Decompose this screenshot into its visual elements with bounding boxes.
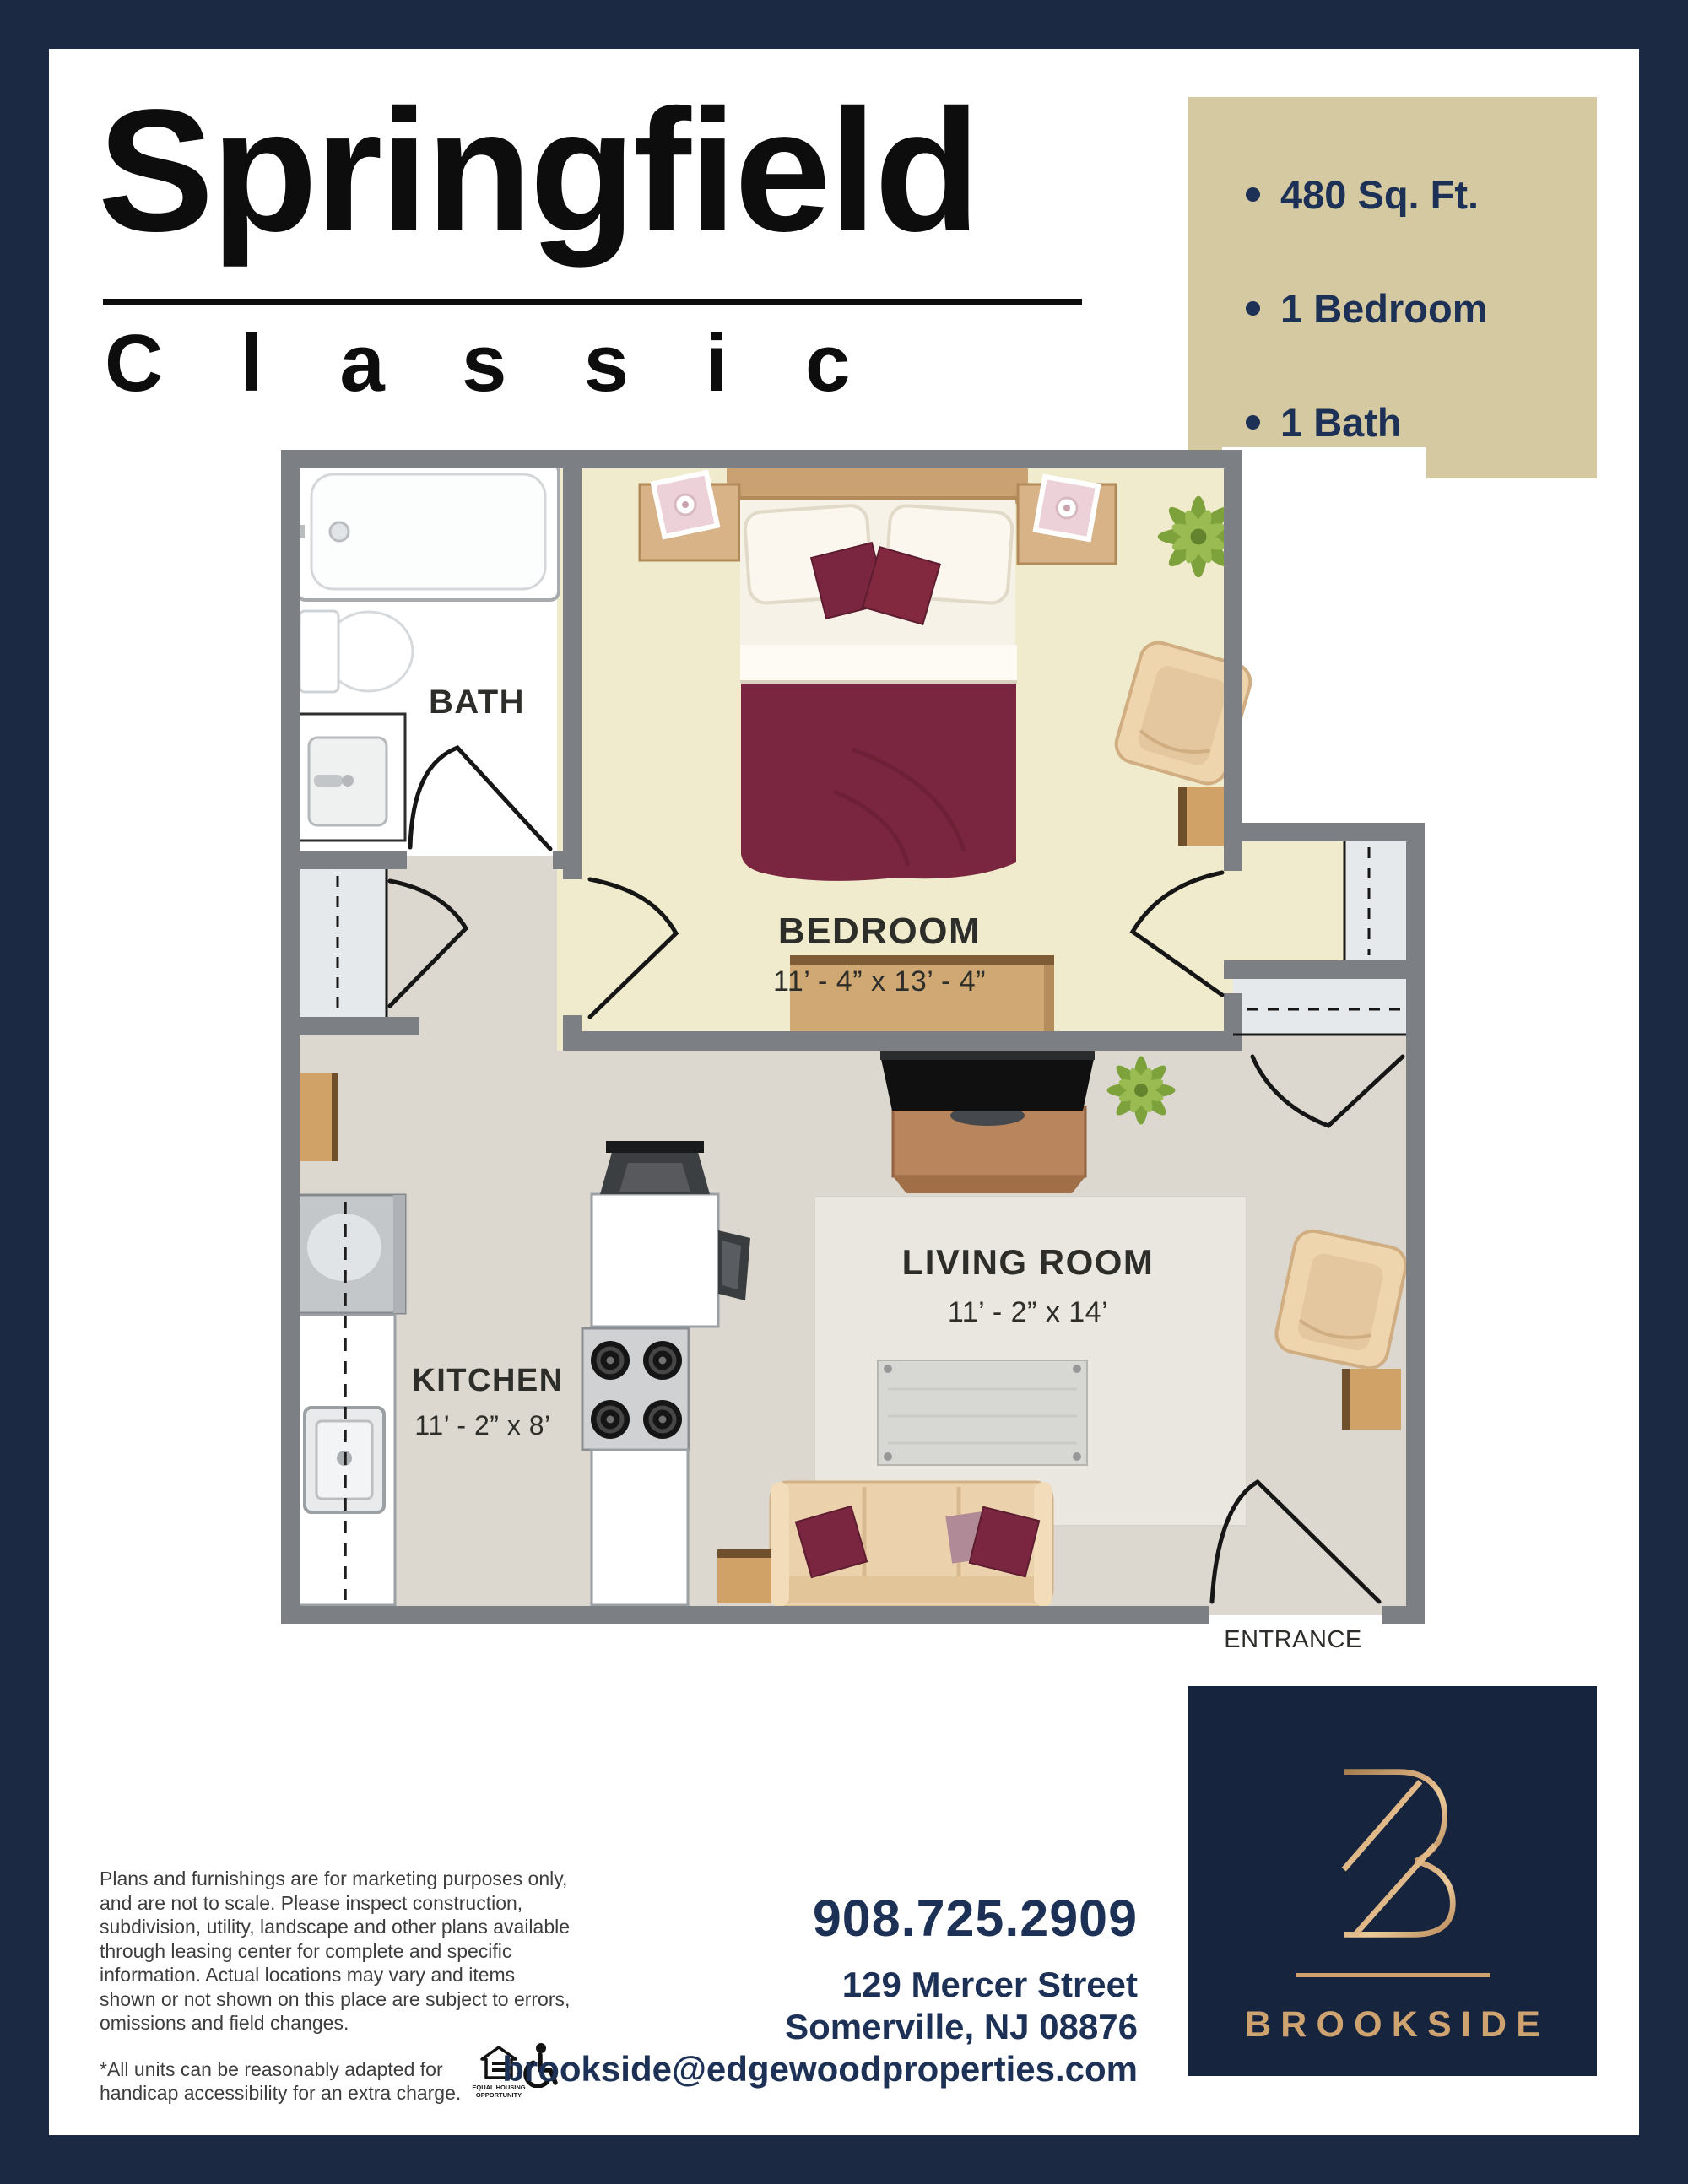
- plant-living: [1107, 1057, 1176, 1125]
- lamp-left: [653, 473, 717, 537]
- kitchen-cabinet: [299, 1073, 338, 1161]
- address-line2: Somerville, NJ 08876: [502, 2008, 1138, 2046]
- email-address: brookside@edgewoodproperties.com: [502, 2051, 1138, 2088]
- address-line1: 129 Mercer Street: [502, 1966, 1138, 2003]
- kitchen-dims: 11’ - 2” x 8’: [414, 1410, 550, 1441]
- bedroom-label: BEDROOM: [778, 911, 981, 952]
- feature-bedroom: 1 Bedroom: [1246, 285, 1597, 332]
- tv-console: [880, 1051, 1095, 1193]
- end-table: [717, 1549, 771, 1603]
- bullet-icon: [1246, 187, 1260, 202]
- lamp-right: [1036, 477, 1098, 539]
- feature-sqft: 480 Sq. Ft.: [1246, 171, 1597, 218]
- armchair-living: [1273, 1228, 1409, 1372]
- entrance-label: ENTRANCE: [1224, 1626, 1362, 1653]
- bathroom-sink: [295, 714, 405, 841]
- flyer-page: Springfield Classic 480 Sq. Ft. 1 Bedroo…: [0, 0, 1688, 2184]
- kitchen-label: KITCHEN: [412, 1363, 563, 1398]
- feature-bath-label: 1 Bath: [1280, 399, 1402, 446]
- sofa: [771, 1482, 1052, 1607]
- brand-name: BROOKSIDE: [1236, 2004, 1550, 2046]
- coffee-table: [878, 1360, 1087, 1465]
- toilet: [300, 611, 413, 692]
- phone-number: 908.725.2909: [502, 1889, 1138, 1948]
- feature-bath: 1 Bath: [1246, 399, 1597, 446]
- feature-sqft-label: 480 Sq. Ft.: [1280, 171, 1479, 218]
- logo-divider: [1296, 1973, 1490, 1977]
- disclaimer-note: *All units can be reasonably adapted for…: [100, 2057, 471, 2106]
- floor-plan: BATH BEDROOM 11’ - 4” x 13’ - 4” LIVING …: [279, 447, 1452, 1681]
- brookside-logo: BROOKSIDE: [1188, 1686, 1597, 2076]
- contact-block: 908.725.2909 129 Mercer Street Somervill…: [502, 1889, 1138, 2088]
- side-table-living: [1342, 1369, 1401, 1430]
- brookside-monogram-icon: [1322, 1764, 1463, 1943]
- kitchen-counter-bottom: [592, 1450, 688, 1605]
- title-divider: [103, 299, 1082, 305]
- bathtub: [297, 463, 559, 600]
- disclaimer-paragraph: Plans and furnishings are for marketing …: [100, 1867, 572, 2035]
- bedroom-dims: 11’ - 4” x 13’ - 4”: [773, 965, 986, 997]
- page-title: Springfield: [98, 71, 978, 271]
- bath-label: BATH: [429, 684, 525, 721]
- bullet-icon: [1246, 415, 1260, 430]
- feature-bedroom-label: 1 Bedroom: [1280, 285, 1488, 332]
- refrigerator: [297, 1195, 405, 1313]
- tv: [880, 1055, 1095, 1111]
- bullet-icon: [1246, 301, 1260, 316]
- living-room-dims: 11’ - 2” x 14’: [948, 1296, 1108, 1328]
- living-room-label: LIVING ROOM: [902, 1242, 1155, 1282]
- stove: [582, 1328, 689, 1450]
- page-subtitle: Classic: [105, 317, 928, 410]
- features-box: 480 Sq. Ft. 1 Bedroom 1 Bath: [1188, 97, 1597, 478]
